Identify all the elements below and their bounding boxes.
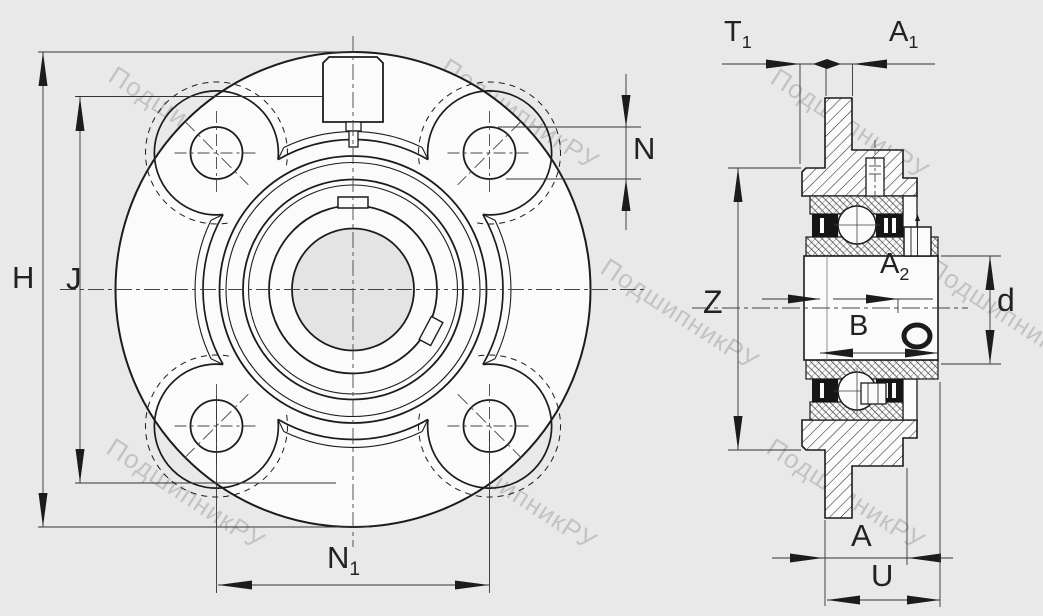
side-view — [692, 98, 968, 518]
front-view — [60, 36, 647, 547]
dim-label-A: A — [851, 520, 872, 557]
dim-label-N: N — [633, 133, 655, 170]
dim-label-Z: Z — [703, 286, 723, 325]
dim-label-J: J — [66, 263, 82, 300]
technical-drawing-bearing-unit: ПодшипникРУ ПодшипникРУ ПодшипникРУ Подш… — [0, 0, 1043, 616]
dim-d — [941, 256, 1001, 364]
dim-label-H: H — [12, 262, 34, 299]
dim-label-A2: A2 — [880, 250, 909, 283]
dim-label-A1: A1 — [889, 18, 918, 51]
dim-label-U: U — [871, 560, 893, 597]
dim-label-T1: T1 — [724, 18, 752, 51]
dim-Z — [728, 168, 801, 450]
housing-front-rim-bottom — [903, 379, 917, 420]
drawing-linework — [0, 0, 1043, 616]
dim-label-d: d — [997, 284, 1015, 323]
dim-label-N1: N1 — [327, 542, 360, 579]
housing-section-top — [802, 98, 917, 196]
screw-section-bottom — [861, 383, 886, 404]
inner-ring-bottom — [806, 360, 938, 379]
dim-label-B: B — [849, 312, 868, 345]
housing-section-bottom — [802, 420, 917, 518]
